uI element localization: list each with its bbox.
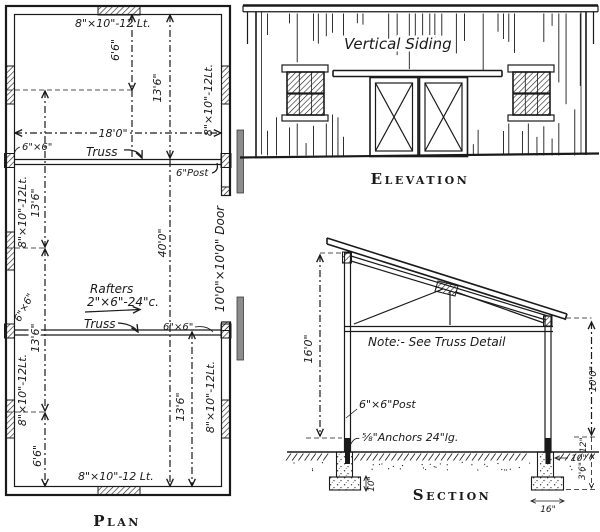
plan-dim-136-right-bottom: 13'6" — [174, 392, 187, 421]
elevation-door-left — [370, 78, 418, 157]
elevation-door-track — [333, 71, 502, 77]
section-post-leader — [346, 409, 357, 418]
plan-rafters-label-1: Rafters — [90, 282, 133, 296]
section-anchor-leader — [350, 438, 361, 446]
plan-outer-wall — [6, 6, 230, 495]
section-post-left-cap — [343, 252, 352, 263]
plan-window-bottom-label: 8"×10"-12 Lt. — [78, 470, 154, 483]
section-view: Note:- See Truss Detail 16'0" 10'0" 6"×6… — [286, 238, 599, 515]
plan-66-lower-right-leader — [195, 327, 213, 332]
plan-window-top — [98, 6, 140, 16]
plan-dimension-lines — [7, 15, 221, 486]
plan-window-right-lower-label: 8"×10"-12Lt. — [204, 361, 217, 433]
plan-66-upper-left-label: 6"×6" — [22, 142, 52, 153]
plan-title: Plan — [93, 512, 141, 530]
plan-post-upper-right — [221, 154, 231, 168]
section-post-right-cap — [544, 316, 553, 326]
elevation-siding-label: Vertical Siding — [344, 35, 452, 53]
section-dim-160: 16'0" — [302, 334, 315, 363]
section-footing-left — [330, 438, 361, 490]
plan-window-right-1 — [222, 66, 231, 104]
elevation-view: Vertical Siding Elevation — [240, 6, 599, 189]
section-anchor-bolt-left — [345, 438, 350, 464]
elevation-window-left — [282, 65, 328, 121]
plan-sliding-door-panel-bottom — [237, 297, 244, 360]
plan-66-lower-left-label: 6"×6" — [13, 292, 37, 324]
section-footing-right — [532, 438, 564, 490]
section-dim-10-left: 10" — [367, 476, 377, 492]
elevation-door-right — [420, 78, 468, 157]
plan-door-label: 10'0"×10'0" Door — [213, 205, 227, 312]
plan-post-lower-left — [5, 324, 15, 338]
plan-window-left-lower-label: 8"×10"-12Lt. — [16, 354, 29, 426]
section-truss-joint — [435, 281, 458, 296]
blueprint-sheet: 8"×10"-12 Lt. 8"×10"-12Lt. 8"×10"-12Lt. … — [0, 0, 600, 532]
section-roof — [327, 238, 567, 320]
section-dim-100: 10'0" — [588, 366, 599, 392]
drawing-svg: 8"×10"-12 Lt. 8"×10"-12Lt. 8"×10"-12Lt. … — [0, 0, 600, 532]
plan-window-left-2 — [6, 232, 15, 270]
plan-sliding-door-panel-top — [237, 130, 244, 193]
section-dim-16: 16" — [540, 505, 556, 515]
section-anchor-bolt-right — [546, 438, 551, 464]
plan-truss-lower-label: Truss — [84, 317, 115, 331]
plan-truss-upper-leader — [124, 150, 142, 158]
plan-window-right-upper-label: 8"×10"-12Lt. — [202, 64, 215, 136]
section-title: Section — [413, 486, 491, 504]
plan-dim-66-top: 6'6" — [109, 39, 122, 61]
elevation-window-right — [508, 65, 554, 121]
section-post-right — [545, 316, 552, 452]
plan-truss-lower-leader — [118, 323, 138, 332]
section-note: Note:- See Truss Detail — [368, 335, 506, 349]
plan-dim-136-left-lower: 13'6" — [29, 323, 42, 352]
plan-dim-400: 40'0" — [156, 228, 169, 257]
plan-dim-136-left-upper: 13'6" — [29, 188, 42, 217]
section-dim-12: 12" — [579, 437, 589, 453]
plan-post-upper-left — [5, 154, 15, 168]
plan-rafters-label-2: 2"×6"-24"c. — [87, 295, 159, 309]
plan-post6-label: 6"Post — [176, 168, 209, 179]
section-truss-bottom-chord — [344, 327, 553, 332]
plan-66-lower-right-label: 6"×6" — [163, 322, 193, 333]
plan-window-left-1 — [6, 66, 15, 104]
plan-window-right-2 — [222, 400, 231, 438]
section-dim-36: 3'6" — [578, 462, 588, 480]
elevation-title: Elevation — [371, 170, 470, 188]
section-post-label: 6"×6"Post — [359, 398, 416, 411]
plan-rafters-leader — [85, 310, 140, 313]
plan-dim-66-bottom: 6'6" — [31, 445, 44, 467]
plan-window-bottom — [98, 487, 140, 496]
plan-dim-180: 18'0" — [98, 127, 127, 140]
plan-door-jamb-post-top — [222, 187, 231, 196]
plan-window-top-label: 8"×10"-12 Lt. — [75, 17, 151, 30]
plan-dim-136-right-top: 13'6" — [151, 73, 164, 102]
plan-post-lower-right — [221, 324, 231, 338]
section-post-left — [344, 253, 351, 452]
plan-window-left-3 — [6, 400, 15, 438]
section-anchor-label: ⅝"Anchors 24"lg. — [362, 431, 458, 444]
plan-truss-upper-label: Truss — [86, 145, 117, 159]
plan-window-left-upper-label: 8"×10"-12Lt. — [16, 176, 29, 248]
plan-view: 8"×10"-12 Lt. 8"×10"-12Lt. 8"×10"-12Lt. … — [5, 6, 244, 531]
